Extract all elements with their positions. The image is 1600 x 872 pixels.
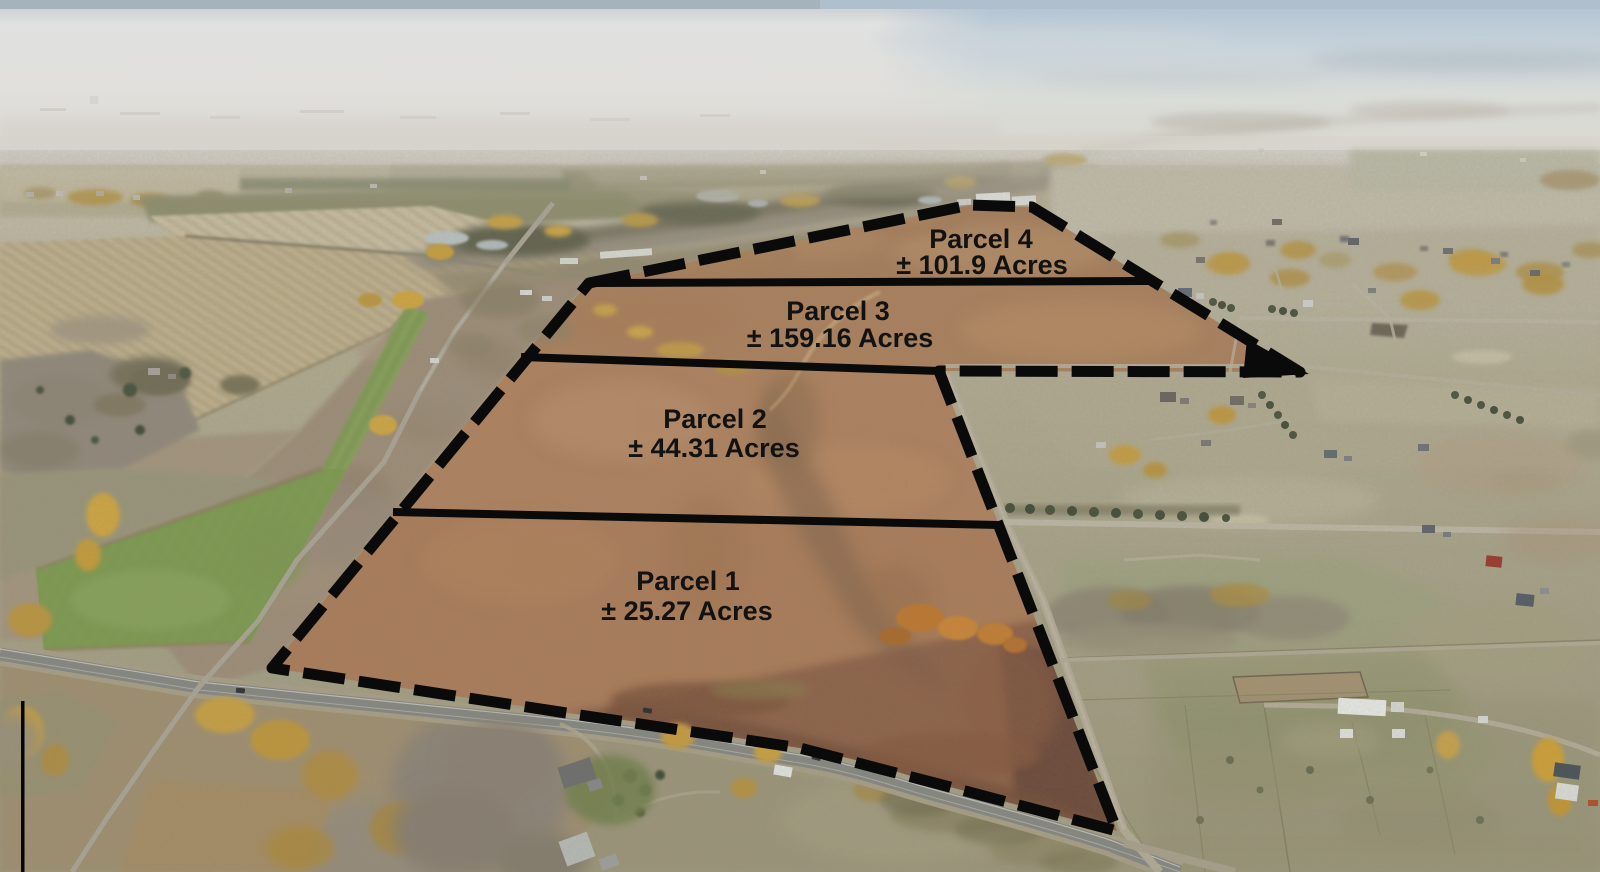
svg-text:± 44.31 Acres: ± 44.31 Acres xyxy=(628,433,799,463)
svg-text:Parcel 3: Parcel 3 xyxy=(786,296,890,326)
svg-text:Parcel 2: Parcel 2 xyxy=(663,404,767,434)
svg-text:± 25.27 Acres: ± 25.27 Acres xyxy=(601,596,772,626)
svg-text:± 101.9 Acres: ± 101.9 Acres xyxy=(896,250,1067,280)
svg-text:Parcel 1: Parcel 1 xyxy=(636,566,740,596)
svg-text:± 159.16 Acres: ± 159.16 Acres xyxy=(747,323,933,353)
